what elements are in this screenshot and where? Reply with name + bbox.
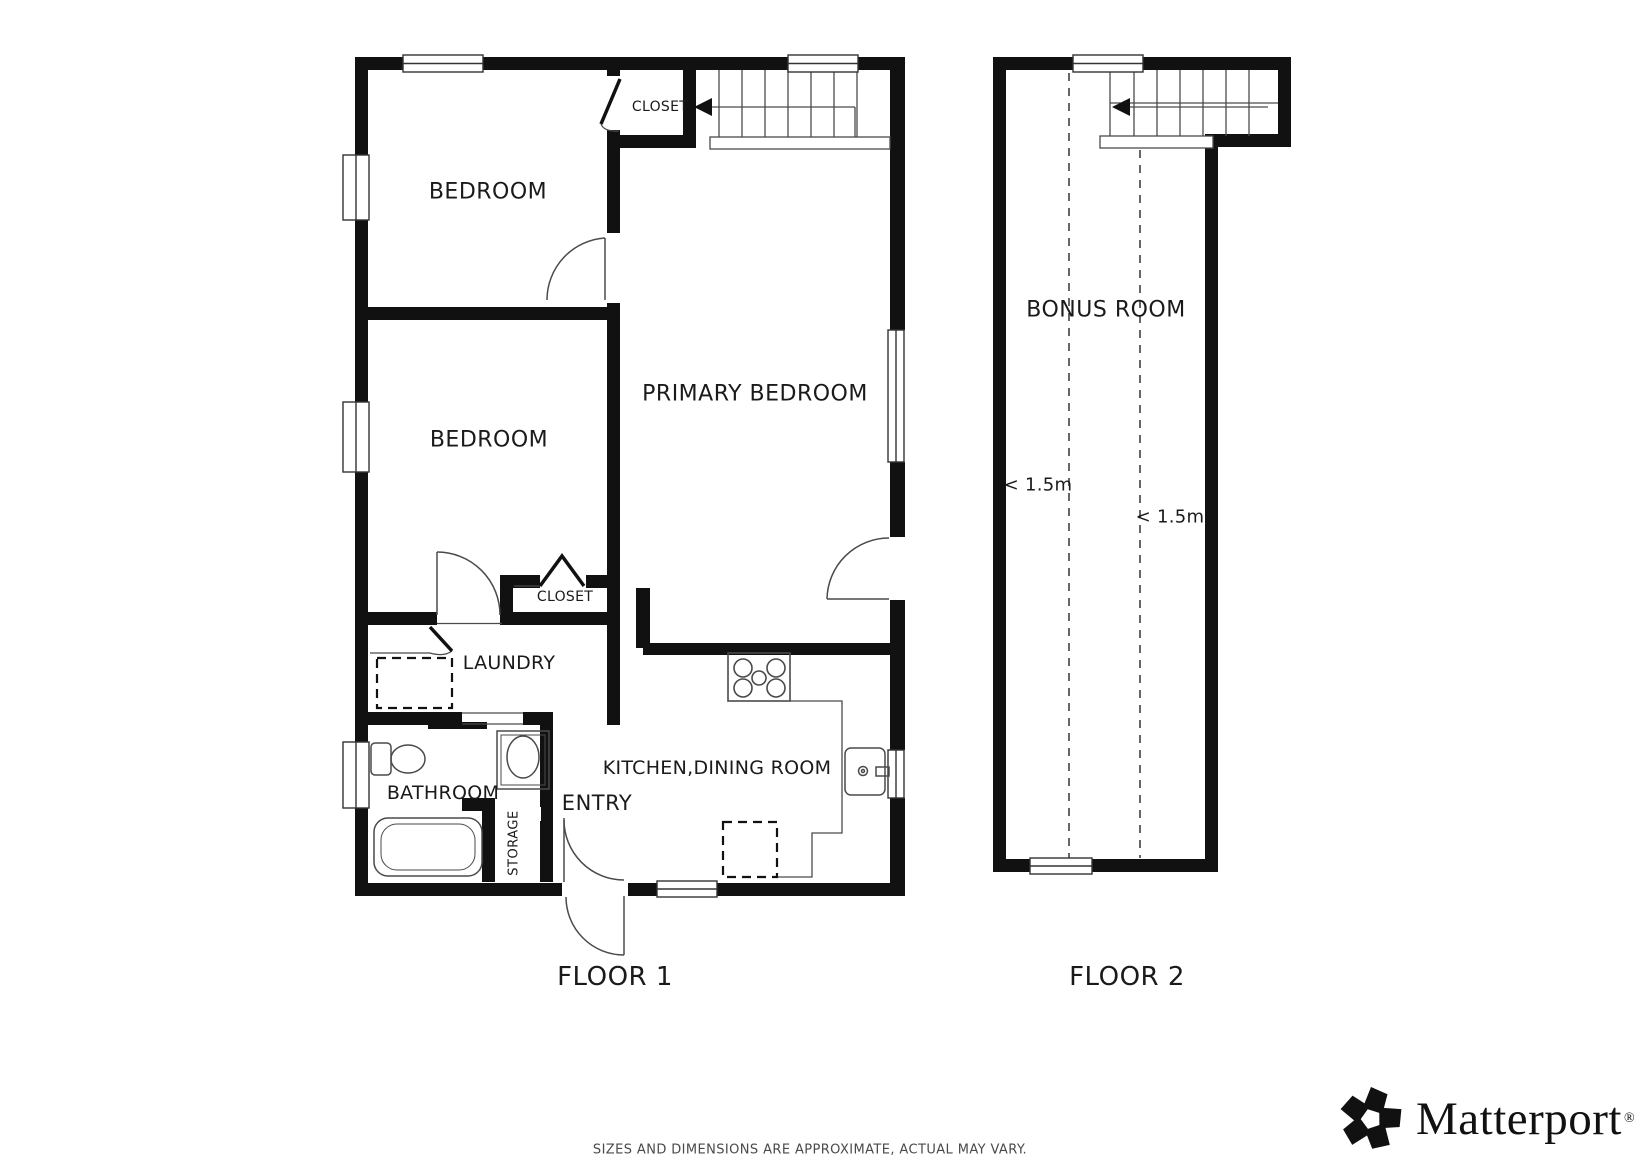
- room-label-bedroom2: BEDROOM: [430, 428, 548, 453]
- f1-stairs-arrow: [694, 98, 712, 116]
- floor2-plan: [993, 57, 1291, 872]
- window: [403, 55, 483, 72]
- kitchen-counter: [777, 701, 842, 877]
- floorplan-drawing: [0, 0, 1647, 1164]
- f2-wall-left: [993, 57, 1006, 872]
- room-label-kitchen-dining: KITCHEN,DINING ROOM: [603, 757, 832, 779]
- window: [788, 55, 858, 72]
- height-annotation-2: < 1.5m: [1136, 507, 1205, 528]
- matterport-wordmark: Matterport: [1416, 1092, 1622, 1146]
- f1-wall-stub: [636, 588, 650, 648]
- room-label-bathroom: BATHROOM: [387, 782, 499, 804]
- window: [1073, 55, 1143, 72]
- kitchen-sink: [845, 748, 889, 795]
- room-label-bonus-room: BONUS ROOM: [1026, 298, 1185, 323]
- laundry-appliance-dashed: [377, 658, 452, 708]
- f1-wall-bottom: [355, 883, 905, 896]
- f1-closet2-left-wall: [500, 575, 513, 625]
- f1-stairs: [710, 70, 890, 149]
- f1-bath-door-bar: [428, 722, 487, 729]
- window: [343, 402, 369, 472]
- room-label-closet-top: CLOSET: [632, 99, 688, 115]
- matterport-logo: Matterport®: [1338, 1086, 1635, 1152]
- kitchen-appliance-dashed: [723, 822, 777, 877]
- window: [888, 330, 904, 462]
- floor1-title: FLOOR 1: [557, 962, 673, 992]
- window: [343, 155, 369, 220]
- f1-closet1-bottom-wall: [607, 135, 696, 148]
- f2-wall-bottom: [993, 859, 1218, 872]
- bathtub: [374, 818, 482, 876]
- room-label-closet-mid: CLOSET: [537, 589, 593, 605]
- f1-storage-right-wall: [540, 712, 553, 882]
- room-label-primary-bedroom: PRIMARY BEDROOM: [642, 382, 868, 407]
- f2-wall-right-upper: [1278, 57, 1291, 147]
- window: [343, 742, 369, 808]
- floor2-title: FLOOR 2: [1069, 962, 1185, 992]
- f2-wall-right: [1205, 134, 1218, 872]
- toilet: [371, 743, 425, 775]
- stove: [728, 653, 790, 701]
- room-label-laundry: LAUNDRY: [463, 652, 555, 674]
- matterport-pinwheel-icon: [1338, 1086, 1404, 1152]
- f2-height-lines: [1069, 73, 1140, 858]
- room-label-storage: STORAGE: [507, 810, 522, 875]
- room-label-entry: ENTRY: [562, 791, 632, 815]
- height-annotation-1: < 1.5m: [1004, 475, 1073, 496]
- f2-windows: [1030, 55, 1143, 874]
- registered-trademark-symbol: ®: [1624, 1111, 1635, 1127]
- f1-wall-a: [607, 70, 620, 725]
- window: [888, 750, 904, 798]
- window: [657, 881, 717, 897]
- f1-wall-bed-divider: [355, 307, 620, 320]
- floorplan-page: BEDROOM CLOSET PRIMARY BEDROOM BEDROOM C…: [0, 0, 1647, 1164]
- disclaimer-text: SIZES AND DIMENSIONS ARE APPROXIMATE, AC…: [593, 1143, 1027, 1158]
- f2-stairs-arrow: [1112, 98, 1130, 116]
- window: [1030, 858, 1092, 874]
- room-label-bedroom1: BEDROOM: [429, 180, 547, 205]
